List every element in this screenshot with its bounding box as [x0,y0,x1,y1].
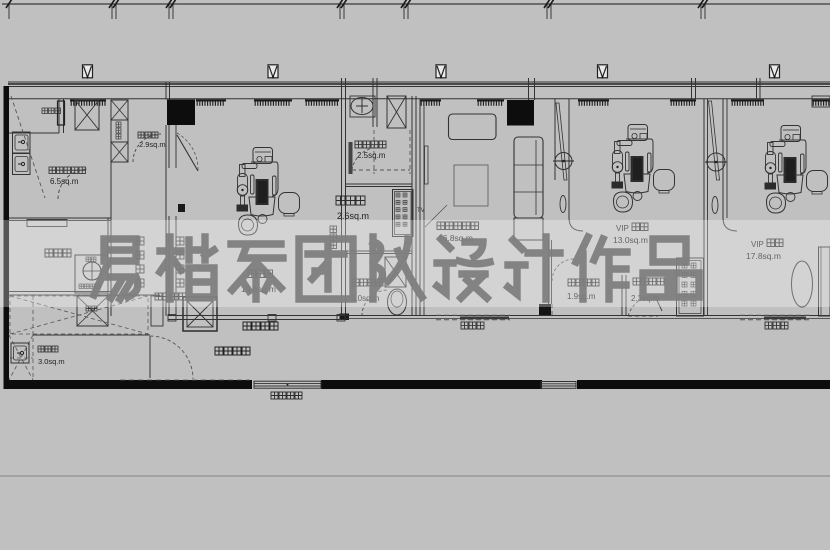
svg-text:2.5sq.m: 2.5sq.m [357,151,386,160]
svg-text:2.6sq.m: 2.6sq.m [337,211,369,221]
svg-text:2.9sq.m: 2.9sq.m [139,140,166,149]
svg-text:3.0sq.m: 3.0sq.m [38,357,65,366]
svg-text:6.5sq.m: 6.5sq.m [50,177,79,186]
svg-text:TV: TV [417,208,425,214]
